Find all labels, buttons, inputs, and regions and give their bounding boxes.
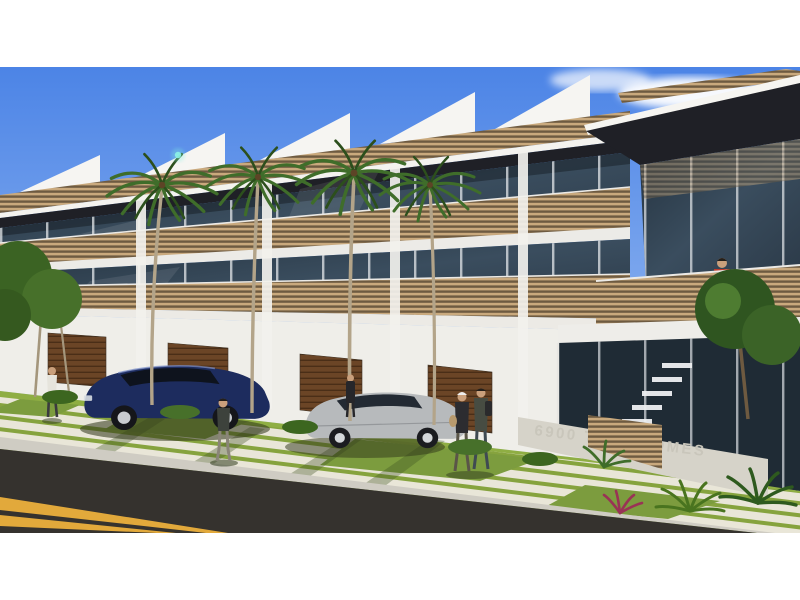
- property-photo: 6900 TOWNHOMES: [0, 67, 800, 533]
- car-shadow: [80, 417, 270, 441]
- property-photo-frame: 6900 TOWNHOMES: [0, 0, 800, 600]
- lens-flare: [171, 148, 185, 162]
- rendering-scene: 6900 TOWNHOMES: [0, 67, 800, 533]
